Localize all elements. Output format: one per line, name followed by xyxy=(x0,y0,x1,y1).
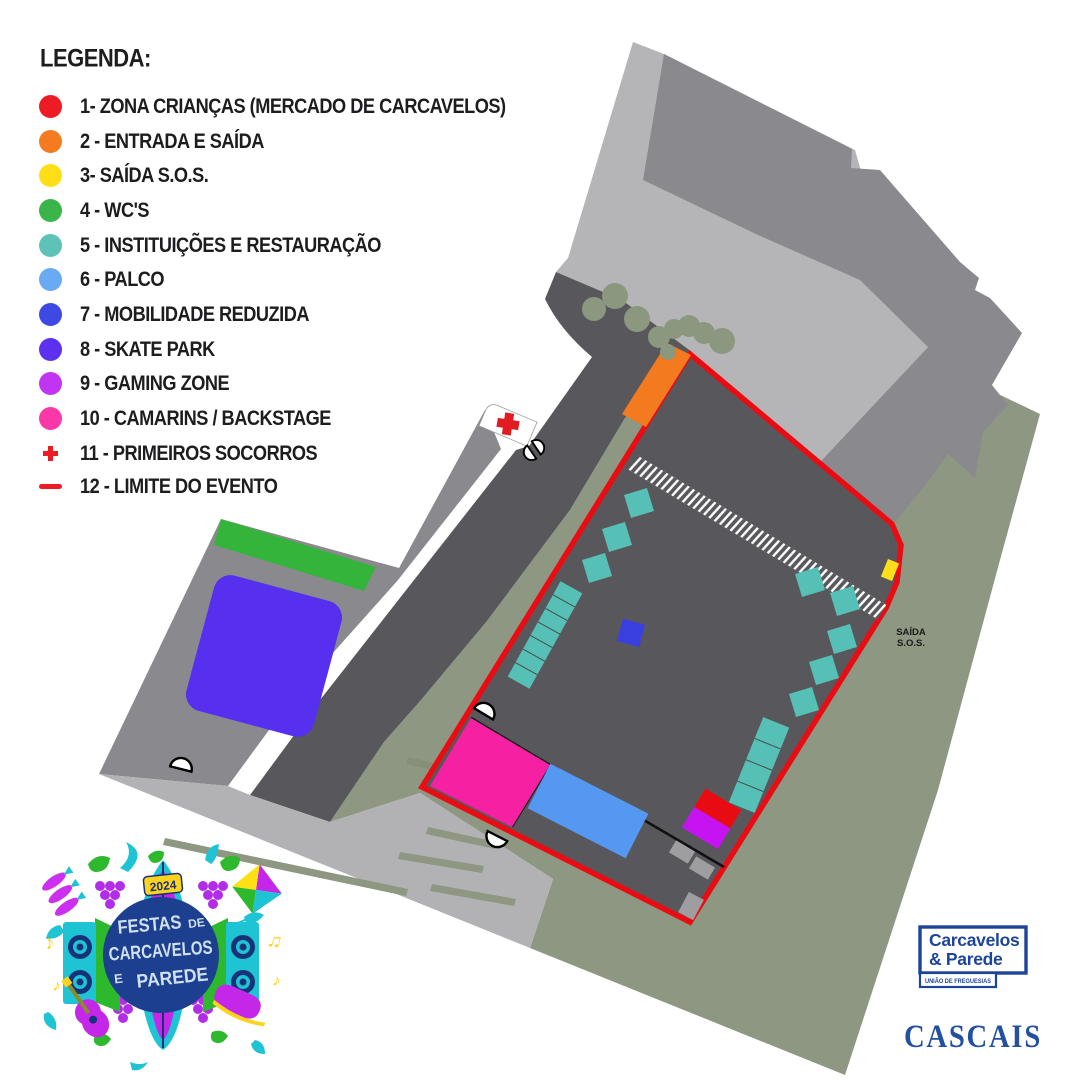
svg-text:2024: 2024 xyxy=(149,878,177,895)
svg-text:DE: DE xyxy=(187,915,205,931)
svg-text:CASCAIS: CASCAIS xyxy=(904,1019,1042,1055)
svg-text:♪: ♪ xyxy=(271,972,281,990)
svg-text:♪: ♪ xyxy=(51,977,62,995)
svg-text:♫: ♫ xyxy=(265,929,285,954)
svg-text:Carcavelos: Carcavelos xyxy=(929,930,1020,950)
svg-text:UNIÃO DE FREGUESIAS: UNIÃO DE FREGUESIAS xyxy=(925,976,992,985)
svg-text:& Parede: & Parede xyxy=(929,949,1003,969)
